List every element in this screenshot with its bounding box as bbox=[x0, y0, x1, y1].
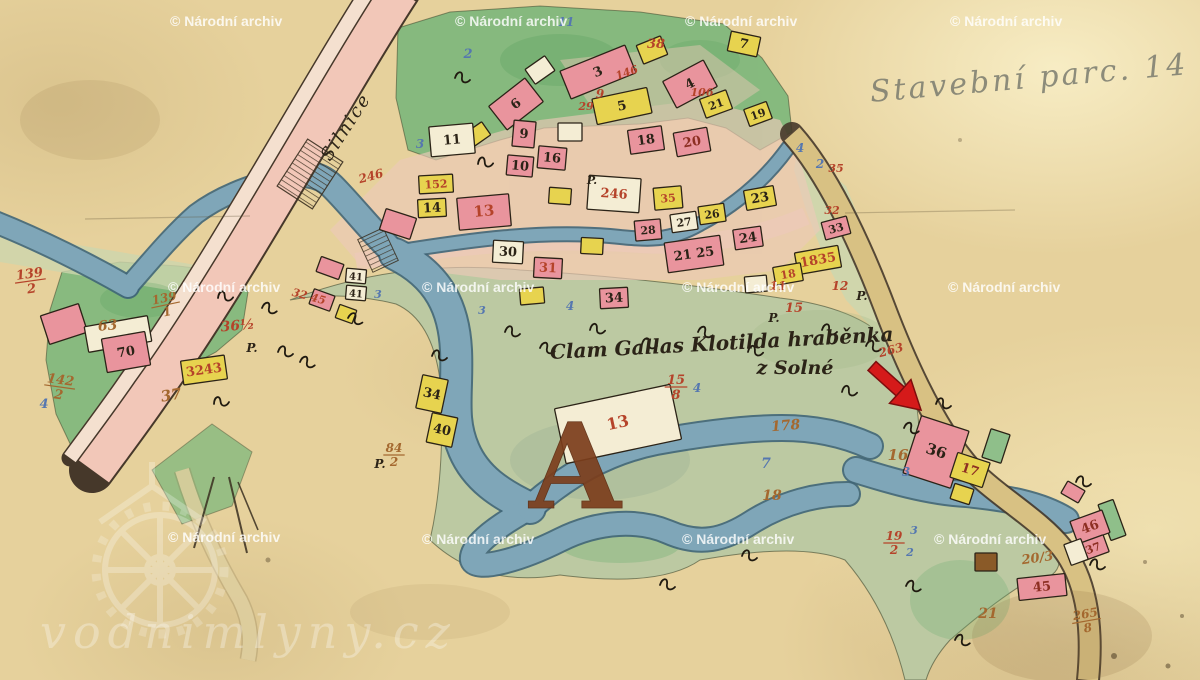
svg-text:21: 21 bbox=[977, 606, 997, 622]
watermark: © Národní archiv bbox=[685, 13, 797, 29]
building-number: 16 bbox=[542, 150, 561, 167]
parcel-label: 106 bbox=[691, 86, 714, 99]
watermark: © Národní archiv bbox=[170, 13, 282, 29]
building-number: 41 bbox=[348, 271, 363, 283]
parcel-label: 3 bbox=[478, 304, 486, 317]
building-number: 10 bbox=[510, 158, 529, 175]
svg-text:P.: P. bbox=[855, 289, 867, 303]
building: 9 bbox=[512, 120, 536, 148]
parcel-label: 3 bbox=[902, 465, 910, 479]
grass-symbol bbox=[278, 346, 293, 356]
building bbox=[581, 237, 604, 254]
building: 23 bbox=[743, 186, 776, 211]
building-number: 246 bbox=[600, 186, 628, 203]
parcel-label: 32 bbox=[824, 204, 840, 217]
building: 152 bbox=[419, 174, 454, 194]
parcel-label: 4 bbox=[566, 299, 574, 313]
svg-text:12: 12 bbox=[832, 279, 849, 293]
building: 24 bbox=[733, 226, 764, 250]
building: 70 bbox=[101, 331, 150, 372]
svg-text:P.: P. bbox=[245, 341, 257, 355]
svg-text:3: 3 bbox=[374, 288, 382, 301]
svg-text:19: 19 bbox=[886, 529, 903, 543]
parcel-label: 12 bbox=[832, 279, 849, 293]
building-number: 27 bbox=[676, 215, 693, 230]
parcel-label: 2 bbox=[815, 157, 824, 171]
building-number: 70 bbox=[116, 344, 136, 362]
building-number: 20 bbox=[682, 134, 702, 152]
svg-text:35: 35 bbox=[828, 162, 843, 175]
svg-text:4: 4 bbox=[796, 141, 804, 155]
vodnimlyny-watermark: vodnimlyny.cz bbox=[40, 605, 457, 659]
svg-text:2: 2 bbox=[389, 455, 398, 469]
parcel-label: 3 bbox=[374, 288, 382, 301]
parcel-label: 178 bbox=[770, 417, 801, 436]
manor-inscription-line2: z Solné bbox=[756, 357, 834, 379]
svg-text:3: 3 bbox=[902, 465, 910, 479]
svg-text:16: 16 bbox=[888, 446, 909, 464]
grass-symbol bbox=[262, 302, 278, 313]
building: 27 bbox=[670, 211, 698, 232]
svg-text:4: 4 bbox=[566, 299, 574, 313]
parcel-label: 7 bbox=[761, 456, 771, 472]
building: 11 bbox=[429, 123, 475, 157]
parcel-label: 37 bbox=[159, 384, 183, 405]
svg-text:38: 38 bbox=[647, 37, 665, 52]
svg-text:84: 84 bbox=[386, 441, 403, 455]
building-number: 45 bbox=[1032, 579, 1052, 596]
building bbox=[975, 553, 997, 571]
parcel-label: 29 bbox=[577, 100, 594, 113]
building-number: 26 bbox=[704, 207, 721, 222]
building: 31 bbox=[533, 257, 562, 278]
grass-symbol bbox=[1090, 559, 1105, 569]
watermark: © Národní archiv bbox=[168, 529, 280, 545]
svg-text:2: 2 bbox=[52, 387, 64, 403]
svg-text:3: 3 bbox=[478, 304, 486, 317]
svg-text:2: 2 bbox=[815, 157, 824, 171]
parcel-label: P. bbox=[767, 311, 779, 325]
svg-text:P.: P. bbox=[373, 457, 385, 471]
svg-text:15: 15 bbox=[785, 301, 803, 316]
building bbox=[558, 123, 582, 141]
parcel-label: 36½ bbox=[220, 317, 255, 336]
svg-text:63: 63 bbox=[97, 317, 118, 335]
building: 20 bbox=[673, 127, 711, 157]
building: 3243 bbox=[181, 355, 228, 385]
svg-text:36½: 36½ bbox=[220, 317, 255, 336]
building: 16 bbox=[537, 146, 567, 170]
parcel-label: P. bbox=[373, 457, 385, 471]
building-number: 30 bbox=[499, 245, 518, 261]
watermark: © Národní archiv bbox=[168, 279, 280, 295]
svg-text:18: 18 bbox=[762, 488, 782, 504]
watermark: © Národní archiv bbox=[948, 279, 1060, 295]
svg-text:P.: P. bbox=[586, 174, 597, 187]
parcel-label: 3 bbox=[416, 137, 424, 151]
parcel-label: 3 bbox=[910, 524, 918, 537]
building: 41 bbox=[345, 285, 366, 301]
building: 30 bbox=[492, 240, 523, 264]
parcel-label: 842 bbox=[383, 441, 404, 469]
building: 35 bbox=[653, 186, 683, 210]
parcel-label: 2 bbox=[462, 47, 472, 62]
grass-symbol bbox=[300, 356, 316, 367]
building: 10 bbox=[506, 155, 534, 177]
parcel-label: 2 bbox=[905, 546, 914, 559]
watermark: © Národní archiv bbox=[455, 13, 567, 29]
building: 41 bbox=[345, 268, 366, 284]
parcel-label: 21 bbox=[977, 606, 997, 622]
cadastral-map: 3456721191820119101615214132463527262330… bbox=[0, 0, 1200, 680]
building-number: 9 bbox=[519, 127, 529, 143]
building bbox=[1061, 481, 1085, 503]
building-number: 41 bbox=[348, 288, 363, 300]
svg-text:37: 37 bbox=[159, 384, 183, 405]
building-number: 23 bbox=[750, 190, 770, 208]
building-number: 14 bbox=[423, 201, 442, 217]
watermark: © Národní archiv bbox=[422, 279, 534, 295]
grass-symbol bbox=[1076, 476, 1091, 486]
svg-text:29: 29 bbox=[577, 100, 594, 113]
svg-text:2: 2 bbox=[889, 543, 898, 557]
grass-symbol bbox=[213, 395, 230, 409]
watermark: © Národní archiv bbox=[682, 279, 794, 295]
parcel-label: 16 bbox=[888, 446, 909, 464]
svg-text:2: 2 bbox=[25, 281, 37, 297]
building bbox=[316, 256, 344, 279]
svg-text:32: 32 bbox=[824, 204, 840, 217]
parcel-label: 9 bbox=[596, 87, 605, 101]
building-number: 18 bbox=[636, 132, 656, 149]
building: 34 bbox=[599, 287, 628, 308]
building-number: 35 bbox=[660, 191, 676, 205]
svg-text:4: 4 bbox=[39, 397, 48, 412]
svg-text:4: 4 bbox=[693, 381, 701, 395]
parcel-label: 15 bbox=[785, 301, 803, 316]
watermark: © Národní archiv bbox=[682, 531, 794, 547]
building-number: 34 bbox=[605, 291, 624, 307]
parcel-label: 4 bbox=[39, 397, 48, 412]
parcel-label: P. bbox=[855, 289, 867, 303]
parcel-label: P. bbox=[586, 174, 597, 187]
parcel-label: 1392 bbox=[13, 265, 48, 299]
grass-symbol bbox=[660, 579, 675, 589]
building: 28 bbox=[634, 219, 662, 241]
building: 13 bbox=[457, 194, 512, 230]
watermark: © Národní archiv bbox=[950, 13, 1062, 29]
parcel-label: P. bbox=[245, 341, 257, 355]
svg-text:2: 2 bbox=[462, 47, 472, 62]
watermark: © Národní archiv bbox=[422, 531, 534, 547]
svg-text:P.: P. bbox=[767, 311, 779, 325]
building bbox=[982, 429, 1010, 464]
building-number: 24 bbox=[738, 230, 758, 247]
svg-text:106: 106 bbox=[691, 86, 714, 99]
parcel-label: 4 bbox=[693, 381, 701, 395]
map-drawing: 3456721191820119101615214132463527262330… bbox=[0, 0, 1200, 680]
building: 40 bbox=[426, 413, 458, 448]
building-number: 13 bbox=[473, 201, 495, 221]
section-letter-a: A bbox=[528, 397, 622, 536]
building: 14 bbox=[418, 198, 447, 217]
building-number: 152 bbox=[424, 177, 448, 191]
parcel-label: 35 bbox=[828, 162, 843, 175]
watermark: © Národní archiv bbox=[934, 531, 1046, 547]
svg-text:9: 9 bbox=[596, 87, 605, 101]
building-number: 11 bbox=[442, 132, 461, 149]
svg-text:178: 178 bbox=[770, 417, 801, 436]
parcel-label: 4 bbox=[796, 141, 804, 155]
parcel-label: 18 bbox=[762, 488, 782, 504]
svg-text:15: 15 bbox=[667, 373, 685, 388]
building: 18 bbox=[627, 126, 664, 154]
building bbox=[548, 187, 571, 204]
building: 45 bbox=[1017, 574, 1067, 601]
svg-text:3: 3 bbox=[416, 137, 424, 151]
pencil-note: Stavební parc. 14 bbox=[869, 47, 1190, 110]
svg-text:8: 8 bbox=[671, 388, 680, 403]
svg-text:3: 3 bbox=[910, 524, 918, 537]
svg-text:2: 2 bbox=[905, 546, 914, 559]
parcel-label: 63 bbox=[97, 317, 118, 335]
building-number: 31 bbox=[539, 261, 558, 277]
parcel-label: 38 bbox=[647, 37, 665, 52]
svg-text:7: 7 bbox=[761, 456, 771, 472]
building: 26 bbox=[698, 203, 726, 224]
building-number: 28 bbox=[640, 223, 657, 237]
